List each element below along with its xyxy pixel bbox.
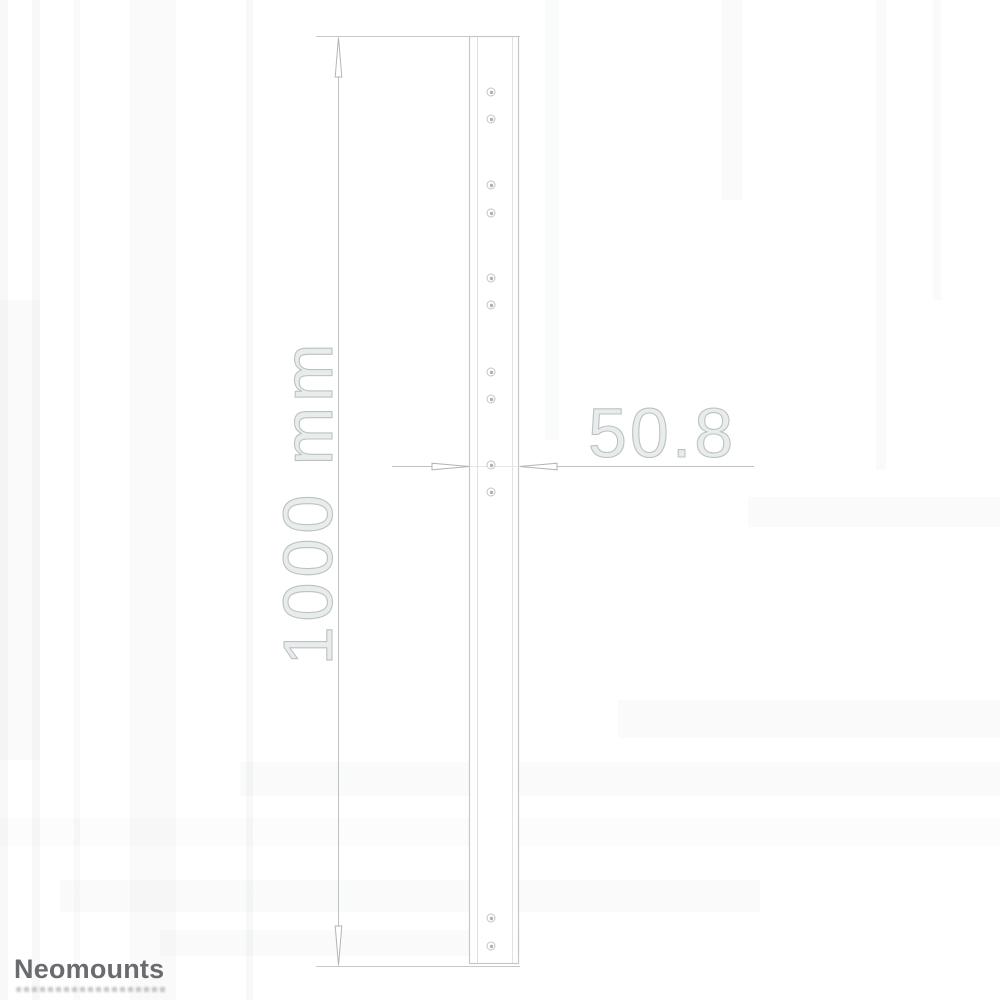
neomounts-logo: Neomounts — [14, 954, 164, 985]
technical-drawing-page: 1000 mm 50.8 Neomounts — [0, 0, 1000, 1000]
hole-center-dot — [490, 464, 493, 467]
vertical-dimension-label: 1000 mm — [268, 312, 348, 692]
hole-center-dot — [490, 184, 493, 187]
horizontal-dimension-label: 50.8 — [588, 400, 736, 466]
arrowhead-right-icon — [432, 463, 470, 470]
arrowhead-down-icon — [335, 926, 342, 966]
hole-center-dot — [490, 945, 493, 948]
dimension-drawing — [0, 0, 1000, 1000]
hole-center-dot — [490, 371, 493, 374]
hole-center-dot — [490, 398, 493, 401]
hole-center-dot — [490, 304, 493, 307]
hole-center-dot — [490, 91, 493, 94]
hole-center-dot — [490, 277, 493, 280]
arrowhead-left-icon — [520, 463, 558, 470]
mount-bar-outline — [470, 37, 519, 964]
logo-tagline-blur — [16, 987, 168, 992]
hole-center-dot — [490, 491, 493, 494]
hole-center-dot — [490, 212, 493, 215]
hole-center-dot — [490, 917, 493, 920]
hole-center-dot — [490, 118, 493, 121]
arrowhead-up-icon — [335, 38, 342, 78]
